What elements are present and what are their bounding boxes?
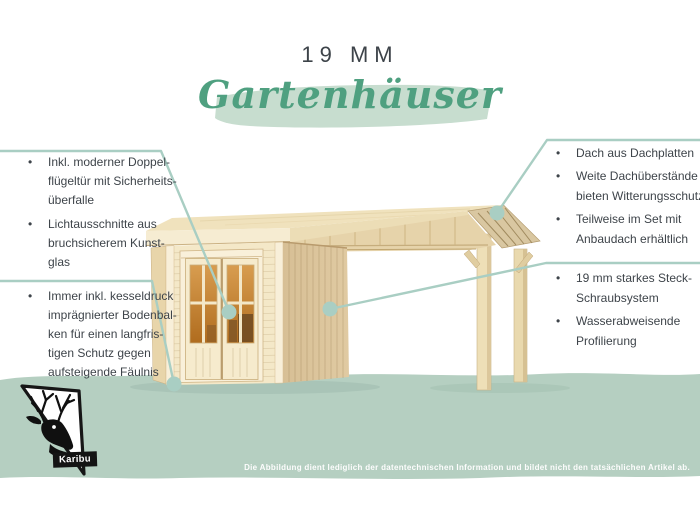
feature-text: Immer inkl. kesseldruck imprägnierter Bo… bbox=[48, 287, 177, 382]
bullet-dot: • bbox=[28, 287, 48, 382]
bullet-dot: • bbox=[28, 153, 48, 210]
bullet-dot: • bbox=[556, 209, 576, 249]
house bbox=[146, 205, 540, 390]
feature-text: Inkl. moderner Doppel- flügeltür mit Sic… bbox=[48, 153, 177, 210]
feature-text: Weite Dachüberstände bieten Witterungssc… bbox=[576, 166, 700, 206]
feature-text: 19 mm starkes Steck- Schraubsystem bbox=[576, 268, 692, 308]
bullet-dot: • bbox=[28, 215, 48, 272]
feature-item: • Weite Dachüberstände bieten Witterungs… bbox=[556, 166, 696, 206]
bullet-dot: • bbox=[556, 268, 576, 308]
feature-item: • Wasserabweisende Profilierung bbox=[556, 311, 696, 351]
feature-block-right-top: • Dach aus Dachplatten • Weite Dachübers… bbox=[556, 143, 696, 252]
double-door bbox=[180, 249, 263, 383]
feature-text: Lichtausschnitte aus bruchsicherem Kunst… bbox=[48, 215, 165, 272]
feature-block-right-bottom: • 19 mm starkes Steck- Schraubsystem • W… bbox=[556, 268, 696, 354]
canopy-posts bbox=[464, 234, 533, 390]
feature-item: • Inkl. moderner Doppel- flügeltür mit S… bbox=[28, 153, 188, 210]
feature-item: • Immer inkl. kesseldruck imprägnierter … bbox=[28, 287, 188, 382]
feature-item: • Teilweise im Set mit Anbaudach erhältl… bbox=[556, 209, 696, 249]
bullet-dot: • bbox=[556, 143, 576, 163]
marketing-slide: 19 MM Gartenhäuser • Inkl. moderner Dopp… bbox=[0, 0, 700, 525]
page-title: 19 MM bbox=[0, 42, 700, 68]
deer-eye bbox=[52, 425, 56, 429]
script-heading: Gartenhäuser bbox=[0, 72, 700, 117]
feature-block-left-top: • Inkl. moderner Doppel- flügeltür mit S… bbox=[28, 153, 188, 277]
feature-item: • Dach aus Dachplatten bbox=[556, 143, 696, 163]
bullet-dot: • bbox=[556, 166, 576, 206]
side-wall bbox=[283, 242, 349, 383]
feature-text: Teilweise im Set mit Anbaudach erhältlic… bbox=[576, 209, 688, 249]
feature-text: Dach aus Dachplatten bbox=[576, 143, 694, 163]
feature-item: • Lichtausschnitte aus bruchsicherem Kun… bbox=[28, 215, 188, 272]
bullet-dot: • bbox=[556, 311, 576, 351]
feature-item: • 19 mm starkes Steck- Schraubsystem bbox=[556, 268, 696, 308]
disclaimer-text: Die Abbildung dient lediglich der datent… bbox=[0, 463, 690, 472]
feature-block-left-bottom: • Immer inkl. kesseldruck imprägnierter … bbox=[28, 287, 188, 387]
feature-text: Wasserabweisende Profilierung bbox=[576, 311, 680, 351]
